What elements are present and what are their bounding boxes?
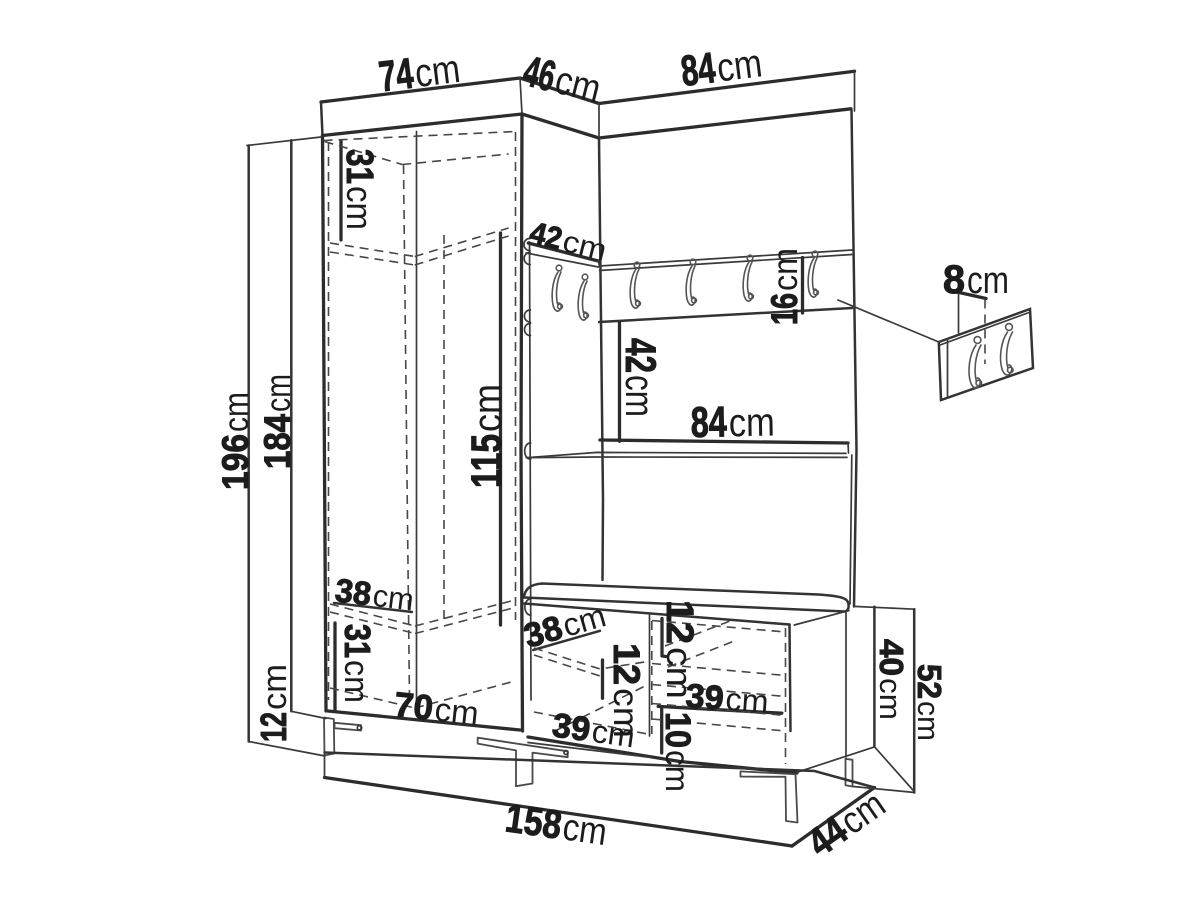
svg-text:cm: cm xyxy=(337,660,375,703)
svg-text:196: 196 xyxy=(215,434,256,490)
svg-text:31: 31 xyxy=(337,624,378,658)
svg-text:42: 42 xyxy=(616,338,664,373)
svg-text:74: 74 xyxy=(376,50,416,102)
svg-text:cm: cm xyxy=(873,678,908,720)
svg-text:cm: cm xyxy=(433,690,481,731)
svg-text:12: 12 xyxy=(253,712,294,742)
svg-text:cm: cm xyxy=(560,806,609,854)
svg-text:39: 39 xyxy=(550,706,593,749)
svg-text:184: 184 xyxy=(257,414,298,469)
svg-text:8: 8 xyxy=(943,258,965,302)
svg-text:cm: cm xyxy=(617,375,661,417)
svg-text:cm: cm xyxy=(466,384,510,432)
svg-text:cm: cm xyxy=(728,401,775,446)
svg-text:cm: cm xyxy=(217,392,256,432)
svg-text:70: 70 xyxy=(392,685,435,728)
svg-text:31: 31 xyxy=(338,149,380,184)
svg-text:cm: cm xyxy=(766,248,805,291)
svg-text:cm: cm xyxy=(256,664,294,710)
svg-text:cm: cm xyxy=(659,750,696,792)
svg-text:cm: cm xyxy=(724,681,769,720)
svg-text:12: 12 xyxy=(606,643,647,685)
svg-text:cm: cm xyxy=(967,260,1009,302)
svg-text:158: 158 xyxy=(503,796,565,847)
svg-text:38: 38 xyxy=(333,571,373,612)
svg-text:cm: cm xyxy=(371,578,416,618)
svg-text:12: 12 xyxy=(658,600,700,644)
svg-text:10: 10 xyxy=(658,712,697,748)
svg-text:84: 84 xyxy=(690,398,727,447)
svg-text:cm: cm xyxy=(412,47,462,96)
svg-text:52: 52 xyxy=(911,664,948,699)
svg-text:cm: cm xyxy=(911,701,946,741)
svg-text:40: 40 xyxy=(873,639,910,676)
svg-text:84: 84 xyxy=(678,44,718,96)
svg-text:16: 16 xyxy=(764,293,805,325)
svg-text:cm: cm xyxy=(714,41,764,90)
svg-text:cm: cm xyxy=(259,374,298,412)
svg-text:cm: cm xyxy=(339,186,380,230)
svg-text:115: 115 xyxy=(463,434,511,488)
svg-text:cm: cm xyxy=(590,713,638,755)
